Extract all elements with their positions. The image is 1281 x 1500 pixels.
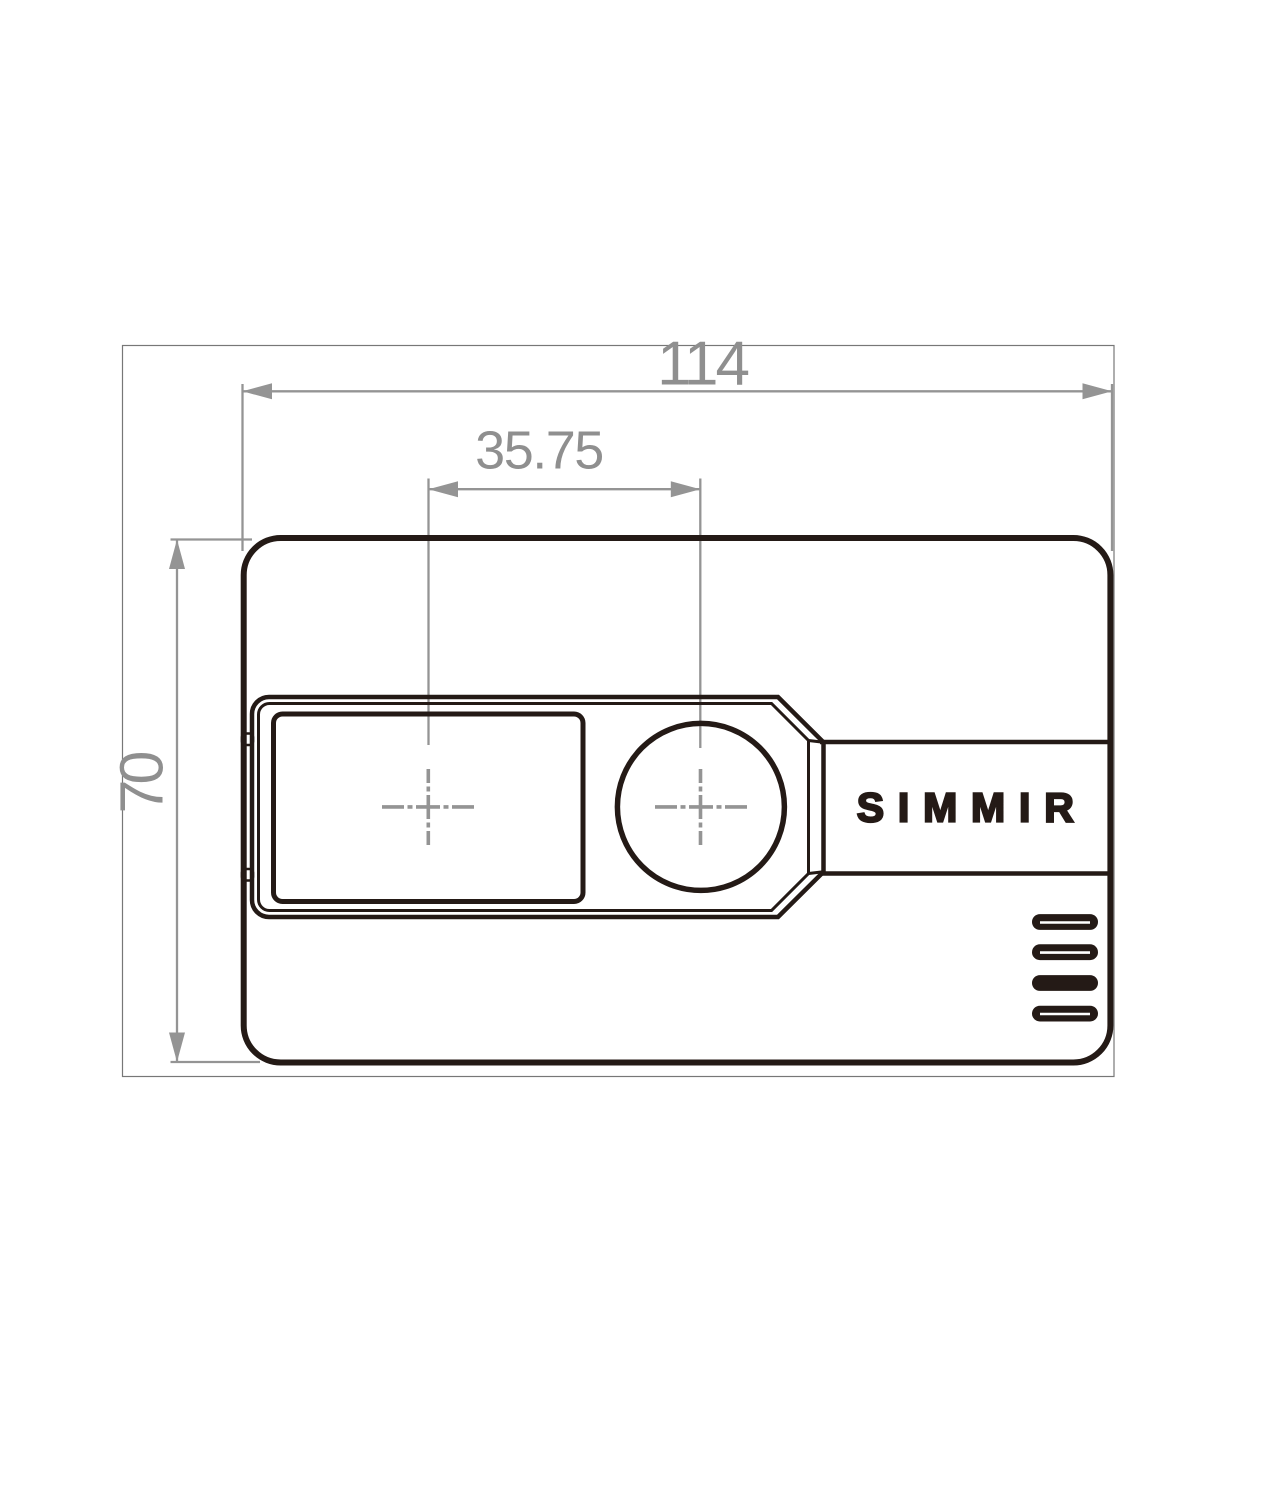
svg-text:35.75: 35.75 <box>475 421 603 481</box>
svg-text:SIMMIR: SIMMIR <box>857 785 1088 831</box>
svg-text:70: 70 <box>107 753 175 814</box>
svg-text:114: 114 <box>657 330 748 399</box>
